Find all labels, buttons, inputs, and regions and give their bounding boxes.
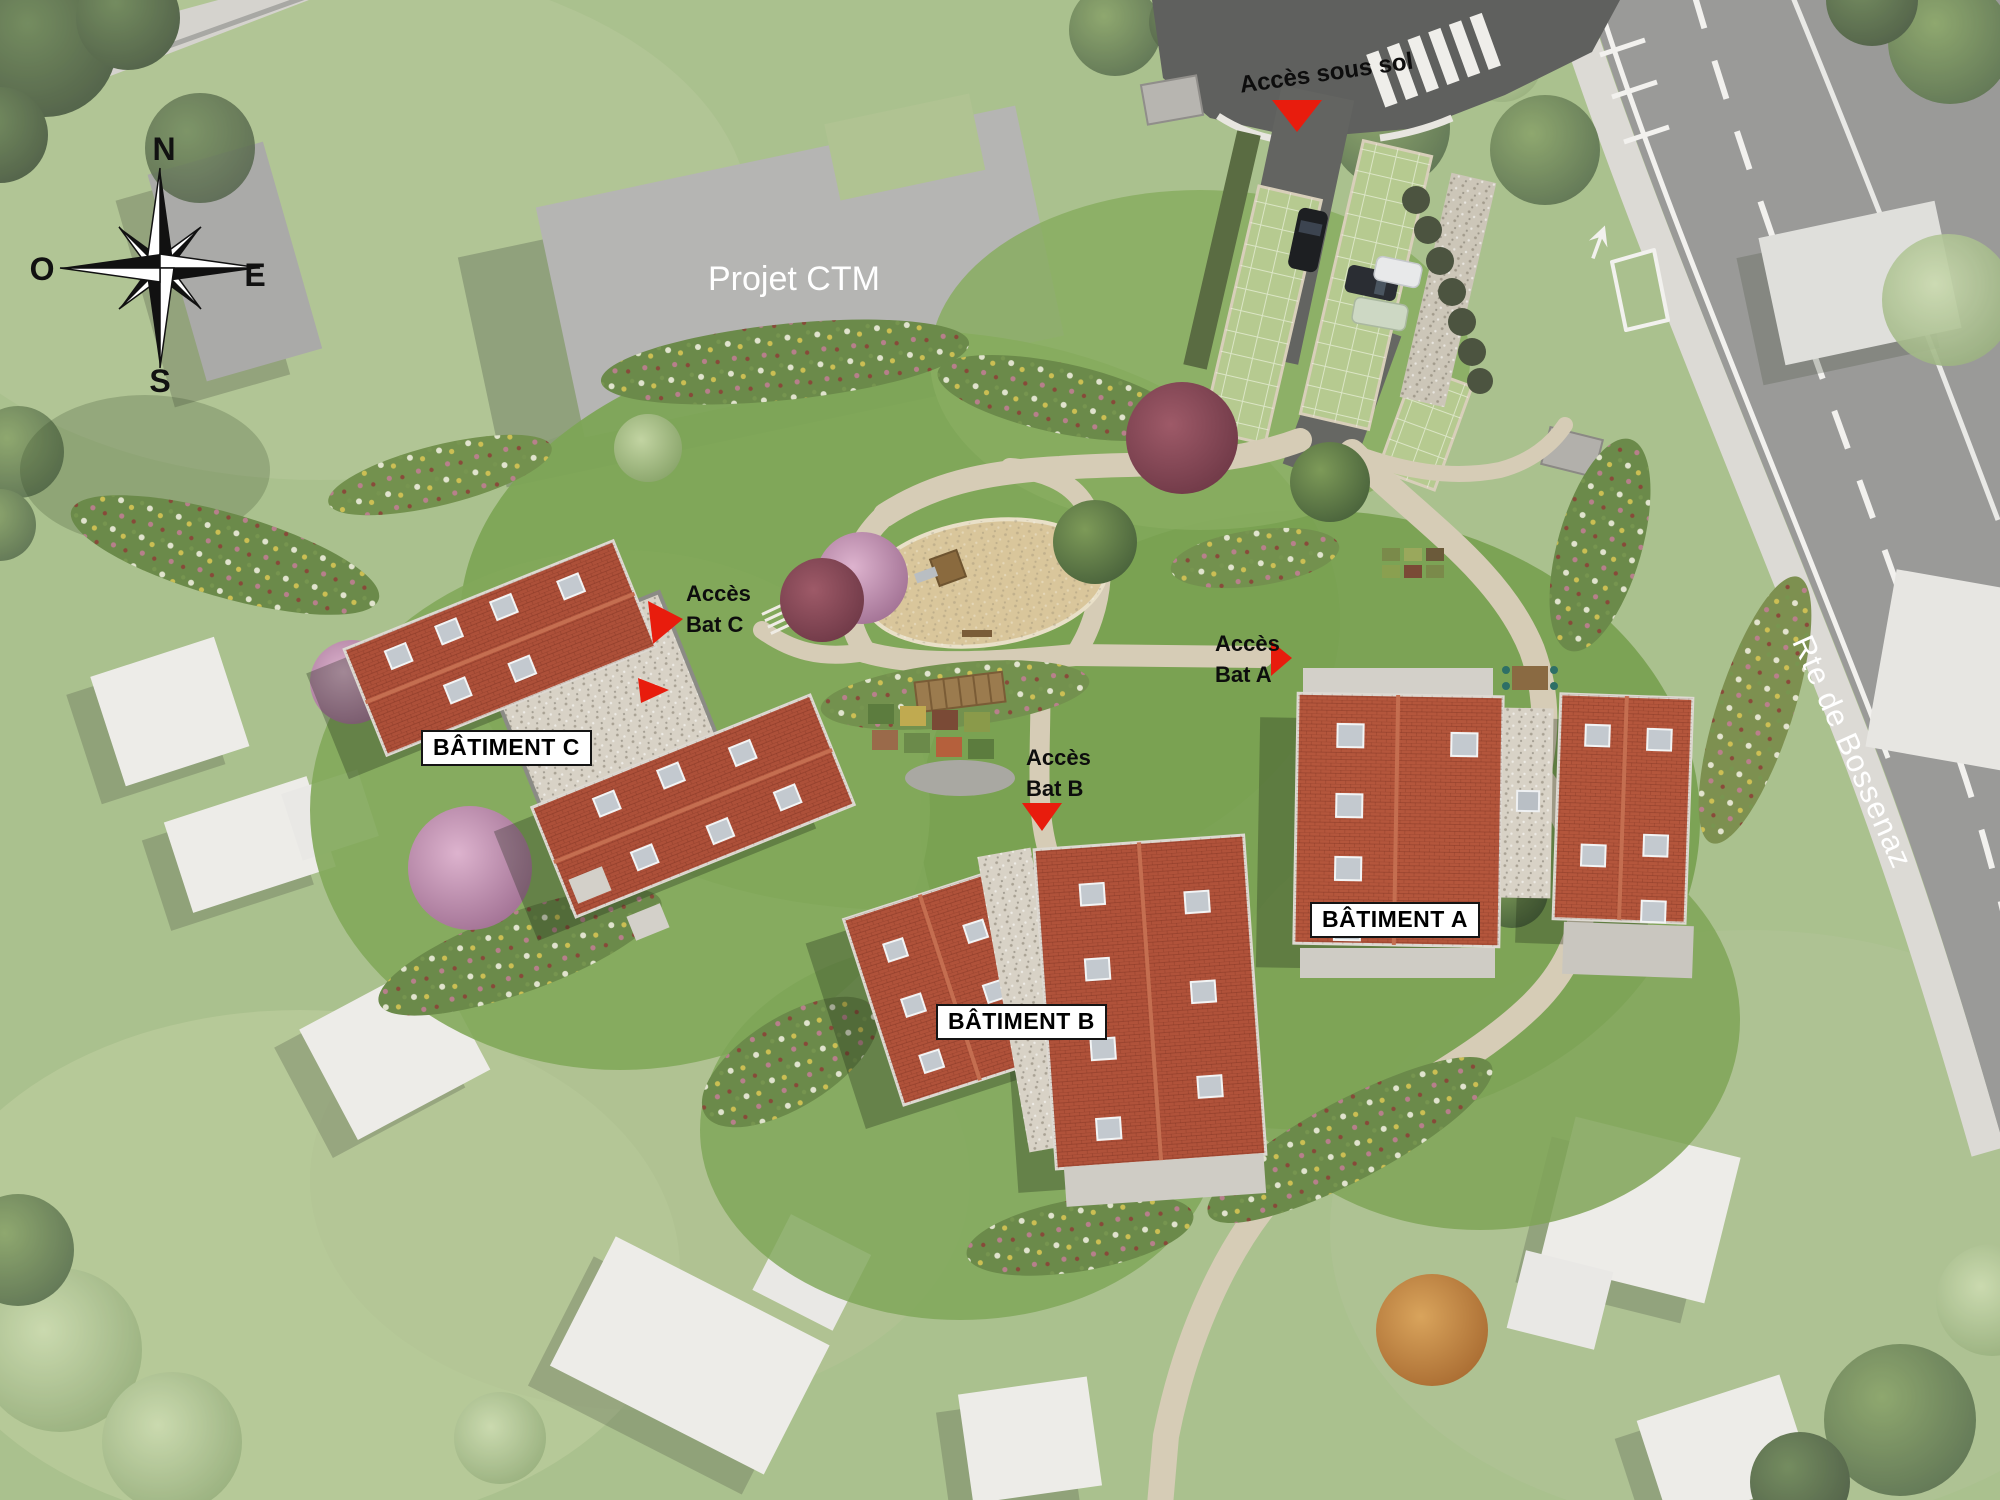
acces-bat-c-label: Accès Bat C — [686, 578, 751, 640]
acces-bat-c-line2: Bat C — [686, 609, 751, 640]
compass-north-label: N — [152, 131, 175, 167]
terrace — [1303, 668, 1493, 696]
acces-bat-a-line2: Bat A — [1215, 659, 1280, 690]
building-b-wing-east — [1034, 835, 1266, 1169]
batiment-c-label: BÂTIMENT C — [421, 730, 592, 766]
projet-ctm-label: Projet CTM — [708, 260, 880, 299]
compass-south-label: S — [149, 363, 170, 399]
bench — [962, 630, 992, 637]
stone-path — [905, 760, 1015, 796]
compass-east-label: E — [244, 257, 265, 293]
acces-bat-b-line2: Bat B — [1026, 773, 1091, 804]
building-a-gravel-roof — [1500, 708, 1553, 899]
site-plan-rendering: N S O E — [0, 0, 2000, 1500]
acces-bat-c-line1: Accès — [686, 578, 751, 609]
compass-west-label: O — [30, 251, 55, 287]
site-plan: N S O E Projet CTM Accès sous sol Accès … — [0, 0, 2000, 1500]
acces-bat-b-line1: Accès — [1026, 742, 1091, 773]
batiment-b-label: BÂTIMENT B — [936, 1004, 1107, 1040]
acces-bat-a-label: Accès Bat A — [1215, 628, 1280, 690]
acces-bat-a-line1: Accès — [1215, 628, 1280, 659]
terrace — [1300, 948, 1495, 978]
building-a-wing-east — [1553, 694, 1693, 923]
batiment-a-label: BÂTIMENT A — [1310, 902, 1480, 938]
terrace — [1562, 922, 1694, 979]
shed — [1141, 75, 1203, 124]
acces-bat-b-label: Accès Bat B — [1026, 742, 1091, 804]
